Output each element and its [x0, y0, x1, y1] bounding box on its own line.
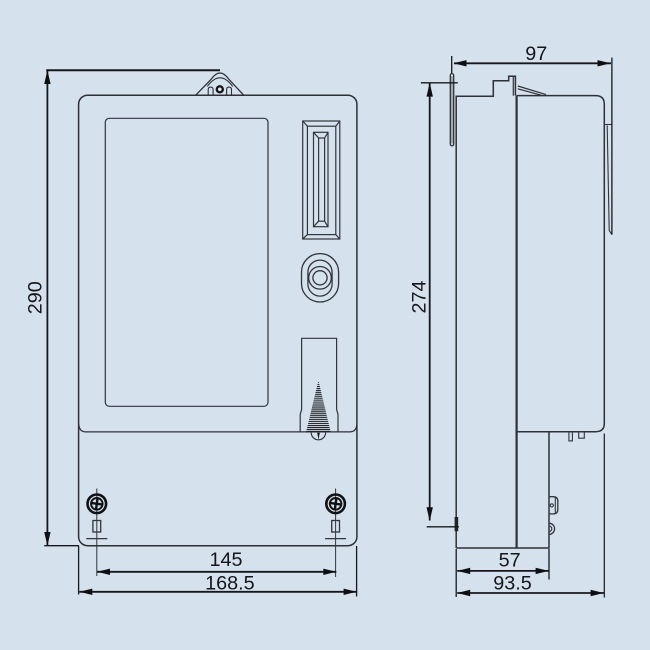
svg-text:145: 145 [209, 549, 242, 571]
svg-text:274: 274 [409, 280, 431, 313]
svg-text:168.5: 168.5 [205, 573, 255, 595]
svg-text:93.5: 93.5 [493, 573, 532, 595]
svg-text:57: 57 [499, 549, 521, 571]
svg-text:290: 290 [24, 281, 46, 314]
svg-text:97: 97 [525, 43, 547, 65]
